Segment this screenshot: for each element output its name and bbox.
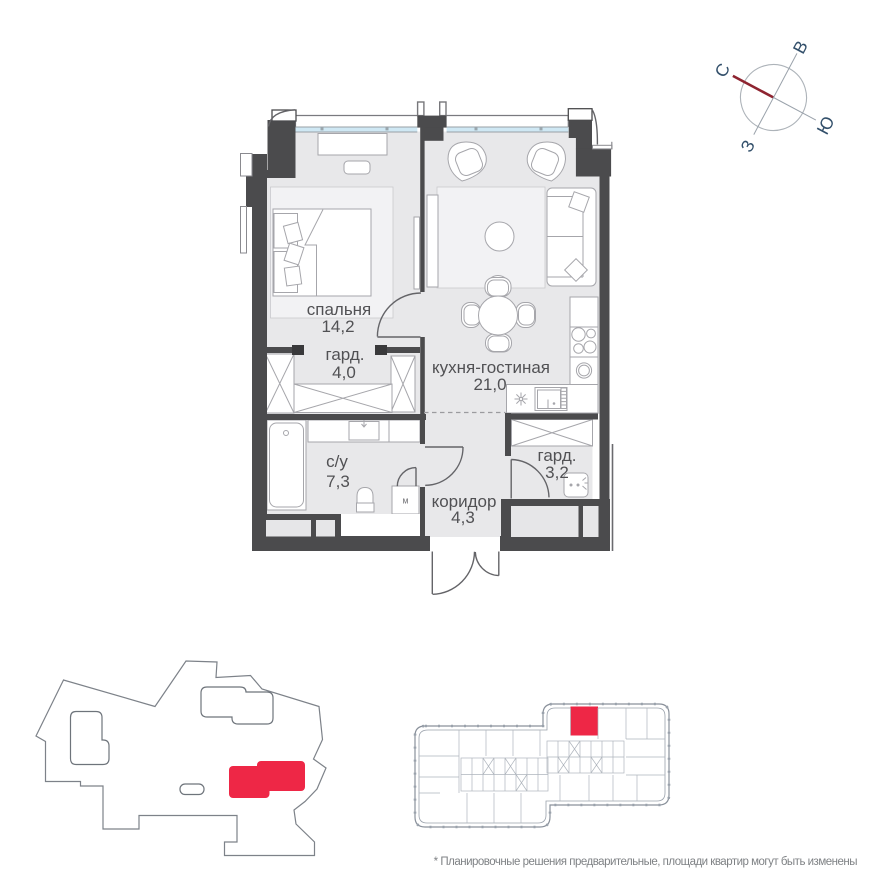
svg-text:4,0: 4,0 [332, 363, 356, 382]
svg-text:3,2: 3,2 [545, 463, 569, 482]
svg-text:гард.: гард. [326, 345, 365, 364]
svg-text:с/у: с/у [326, 452, 348, 471]
svg-text:м: м [402, 496, 408, 506]
svg-text:4,3: 4,3 [451, 508, 475, 527]
svg-text:14,2: 14,2 [321, 317, 354, 336]
svg-text:7,3: 7,3 [326, 472, 350, 491]
svg-text:* Планировочные решения предва: * Планировочные решения предварительные,… [434, 856, 858, 868]
svg-text:21,0: 21,0 [473, 375, 506, 394]
